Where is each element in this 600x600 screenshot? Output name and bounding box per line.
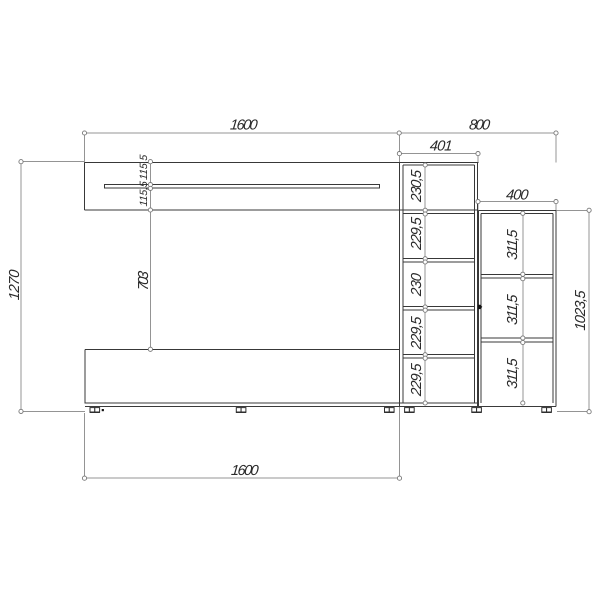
svg-text:311,5: 311,5 (505, 293, 521, 326)
svg-text:230,5: 230,5 (409, 168, 425, 203)
svg-text:401: 401 (429, 139, 453, 155)
svg-text:311,5: 311,5 (505, 228, 521, 261)
svg-text:115,5: 115,5 (138, 181, 150, 207)
svg-text:800: 800 (468, 118, 490, 134)
svg-text:400: 400 (505, 188, 529, 204)
svg-text:703: 703 (136, 270, 152, 291)
svg-text:1600: 1600 (230, 463, 259, 479)
svg-text:1023,5: 1023,5 (573, 289, 589, 331)
svg-text:229,5: 229,5 (409, 315, 425, 351)
svg-text:230: 230 (409, 273, 425, 298)
svg-text:1270: 1270 (7, 269, 23, 301)
svg-text:229,5: 229,5 (409, 216, 425, 252)
svg-text:311,5: 311,5 (505, 357, 521, 390)
svg-text:229,5: 229,5 (409, 362, 425, 398)
svg-text:1600: 1600 (229, 118, 258, 134)
svg-text:115,5: 115,5 (138, 154, 150, 180)
